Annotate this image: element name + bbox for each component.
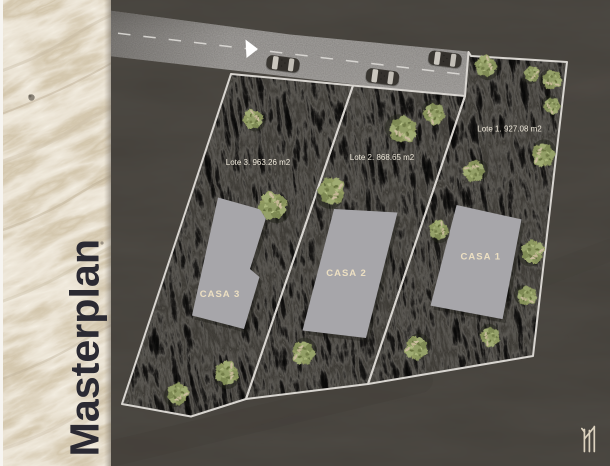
svg-text:Lote 1. 927.08 m2: Lote 1. 927.08 m2: [477, 125, 542, 134]
svg-text:CASA 2: CASA 2: [326, 268, 367, 279]
svg-text:Lote 2. 868.65 m2: Lote 2. 868.65 m2: [350, 153, 415, 162]
svg-text:Lote 3. 963.26 m2: Lote 3. 963.26 m2: [226, 158, 291, 167]
svg-text:Masterplan: Masterplan: [61, 239, 107, 456]
svg-text:CASA 1: CASA 1: [461, 252, 502, 263]
svg-text:CASA 3: CASA 3: [200, 289, 241, 300]
